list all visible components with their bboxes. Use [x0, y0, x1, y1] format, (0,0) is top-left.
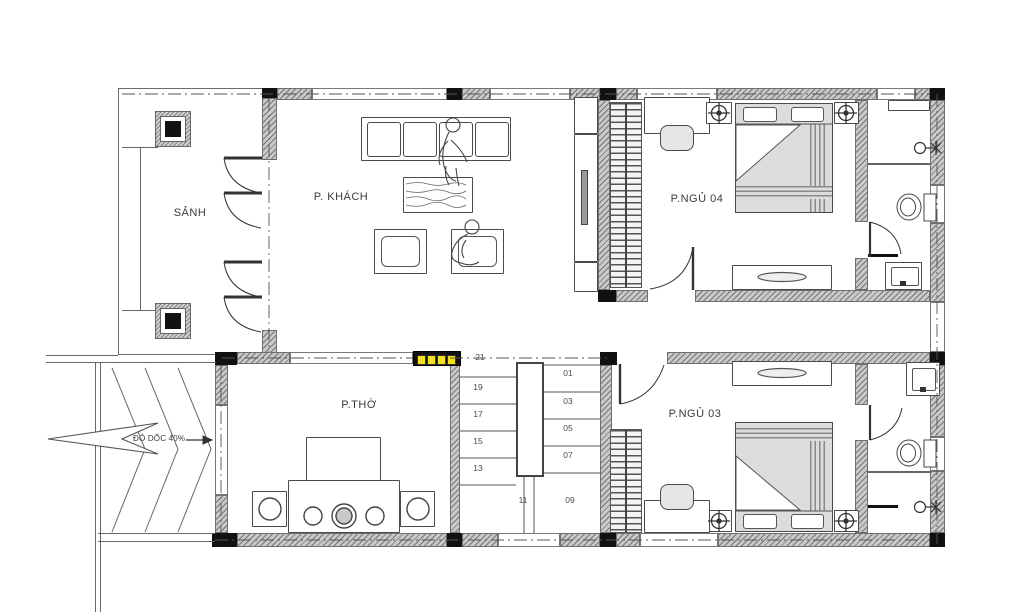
walkway-line: [46, 362, 216, 363]
wall-segment: [695, 290, 930, 302]
wall-segment: [717, 88, 877, 100]
walkway-line: [95, 362, 96, 612]
door-threshold: [868, 254, 898, 257]
column: [447, 88, 462, 100]
bathroom-divider: [868, 471, 930, 473]
bedroom3-door-swing-icon: [620, 364, 664, 404]
stair-step-number: 03: [558, 396, 578, 406]
stair-step-number: 17: [468, 409, 488, 419]
armchair-cushion: [458, 236, 497, 267]
pillow: [743, 514, 777, 529]
column-core-frame: [160, 116, 186, 142]
window: [930, 185, 945, 223]
column: [215, 352, 237, 365]
bath-shelf: [888, 100, 930, 111]
desk-chair: [660, 125, 694, 151]
column: [930, 533, 945, 547]
bed-runner: [736, 428, 832, 441]
coffee-table: [403, 177, 473, 213]
room-label-bedroom3: P.NGỦ 03: [657, 408, 733, 420]
wall-segment: [930, 471, 945, 533]
stair-step-number: 01: [558, 368, 578, 378]
tv-screen: [581, 170, 588, 225]
window: [877, 88, 915, 100]
column: [600, 533, 616, 547]
sink-basin: [912, 368, 936, 391]
wardrobe-rail: [625, 103, 627, 287]
column: [600, 88, 616, 100]
altar-table: [288, 480, 400, 533]
wall-segment: [616, 533, 640, 547]
porch-column: [155, 303, 191, 339]
stair-step-number: 13: [468, 463, 488, 473]
pillow: [743, 107, 777, 122]
wall-segment: [462, 88, 490, 100]
sink-basin: [891, 267, 919, 286]
floor-plan: SẢNH P. KHÁCH P.THỜ P.NGỦ 04 P.NGỦ 03 ĐỘ…: [0, 0, 1024, 614]
window: [290, 352, 413, 364]
wall-segment: [930, 100, 945, 185]
wall-segment: [598, 100, 610, 290]
armchair: [374, 229, 427, 274]
ramp-slope-arrow-icon: [186, 436, 212, 444]
ramp-slope-label: ĐỘ DỐC 40%: [133, 434, 185, 443]
sofa-seat: [439, 122, 473, 157]
stair-step-number: 11: [513, 495, 533, 505]
glass-block: [417, 355, 426, 366]
walkway-line: [46, 355, 118, 356]
porch-step-line: [140, 147, 141, 310]
wall-segment: [462, 533, 498, 547]
wall-segment: [616, 88, 637, 100]
desk-chair: [660, 484, 694, 510]
bed-runner: [810, 441, 826, 511]
dresser: [732, 265, 832, 290]
wall-segment: [262, 98, 277, 160]
wall-segment: [237, 533, 447, 547]
tv-cabinet: [574, 262, 598, 292]
bathroom-divider: [868, 163, 930, 165]
bathroom1-door-swing-icon: [870, 222, 901, 257]
glass-block: [427, 355, 436, 366]
sofa-seat: [403, 122, 437, 157]
glass-block: [437, 355, 446, 366]
dresser: [732, 361, 832, 386]
wall-segment: [277, 88, 312, 100]
column: [212, 533, 237, 547]
wall-segment: [915, 88, 930, 100]
window: [490, 88, 570, 100]
highlighted-wall-segment: [413, 351, 461, 366]
nightstand: [834, 510, 859, 532]
ramp-chevron-icons: [112, 368, 211, 532]
room-label-living: P. KHÁCH: [303, 191, 379, 203]
column: [600, 352, 617, 365]
altar-side-stand: [252, 491, 287, 527]
tv-cabinet: [574, 97, 598, 134]
pillow: [791, 107, 824, 122]
wall-segment: [560, 533, 600, 547]
window: [498, 533, 560, 547]
stair-step-number: 19: [468, 382, 488, 392]
walkway-line: [100, 362, 101, 612]
sofa: [361, 117, 511, 161]
stair-step-number: 09: [560, 495, 580, 505]
armchair-cushion: [381, 236, 420, 267]
wall-segment: [450, 365, 460, 533]
column-core-frame: [160, 308, 186, 334]
stair-step-number: 05: [558, 423, 578, 433]
wall-segment: [215, 365, 228, 405]
column: [598, 290, 616, 302]
door-threshold: [868, 505, 898, 508]
nightstand: [706, 102, 732, 124]
column: [447, 533, 462, 547]
bed-runner: [736, 186, 832, 199]
stair-rail: [516, 362, 544, 477]
stair-step-number: 15: [468, 436, 488, 446]
window: [215, 405, 228, 495]
window: [930, 437, 945, 471]
room-label-hall: SẢNH: [158, 207, 222, 219]
sink: [885, 262, 922, 290]
wardrobe: [610, 429, 642, 533]
porch-column: [155, 111, 191, 147]
window: [640, 533, 718, 547]
window: [312, 88, 447, 100]
wall-segment: [930, 223, 945, 302]
porch-step-line: [122, 310, 158, 311]
walkway-line: [98, 533, 215, 534]
wardrobe: [610, 102, 642, 288]
bedroom4-door-swing-icon: [650, 247, 693, 290]
wall-segment: [855, 258, 868, 290]
wall-segment: [855, 364, 868, 405]
room-label-worship: P.THỜ: [327, 399, 391, 411]
wall-segment: [718, 533, 930, 547]
stair-step-number: 21: [470, 352, 490, 362]
altar-back-panel: [306, 437, 381, 481]
room-label-bedroom4: P.NGỦ 04: [659, 193, 735, 205]
column-core: [165, 313, 181, 329]
glass-block: [447, 355, 456, 366]
wall-segment: [616, 290, 648, 302]
window: [930, 302, 945, 352]
column-core: [165, 121, 181, 137]
wall-segment: [237, 352, 290, 364]
sofa-seat: [475, 122, 509, 157]
bathroom2-door-swing-icon: [870, 405, 902, 440]
armchair: [451, 229, 504, 274]
column: [930, 88, 945, 100]
wall-segment: [215, 495, 228, 533]
pillow: [791, 514, 824, 529]
porch-outline: [118, 88, 278, 355]
nightstand: [834, 102, 859, 124]
stair-step-number: 07: [558, 450, 578, 460]
wardrobe-rail: [625, 430, 627, 532]
sink: [906, 362, 940, 396]
sofa-seat: [367, 122, 401, 157]
altar-side-stand: [400, 491, 435, 527]
walkway-line: [98, 541, 215, 542]
